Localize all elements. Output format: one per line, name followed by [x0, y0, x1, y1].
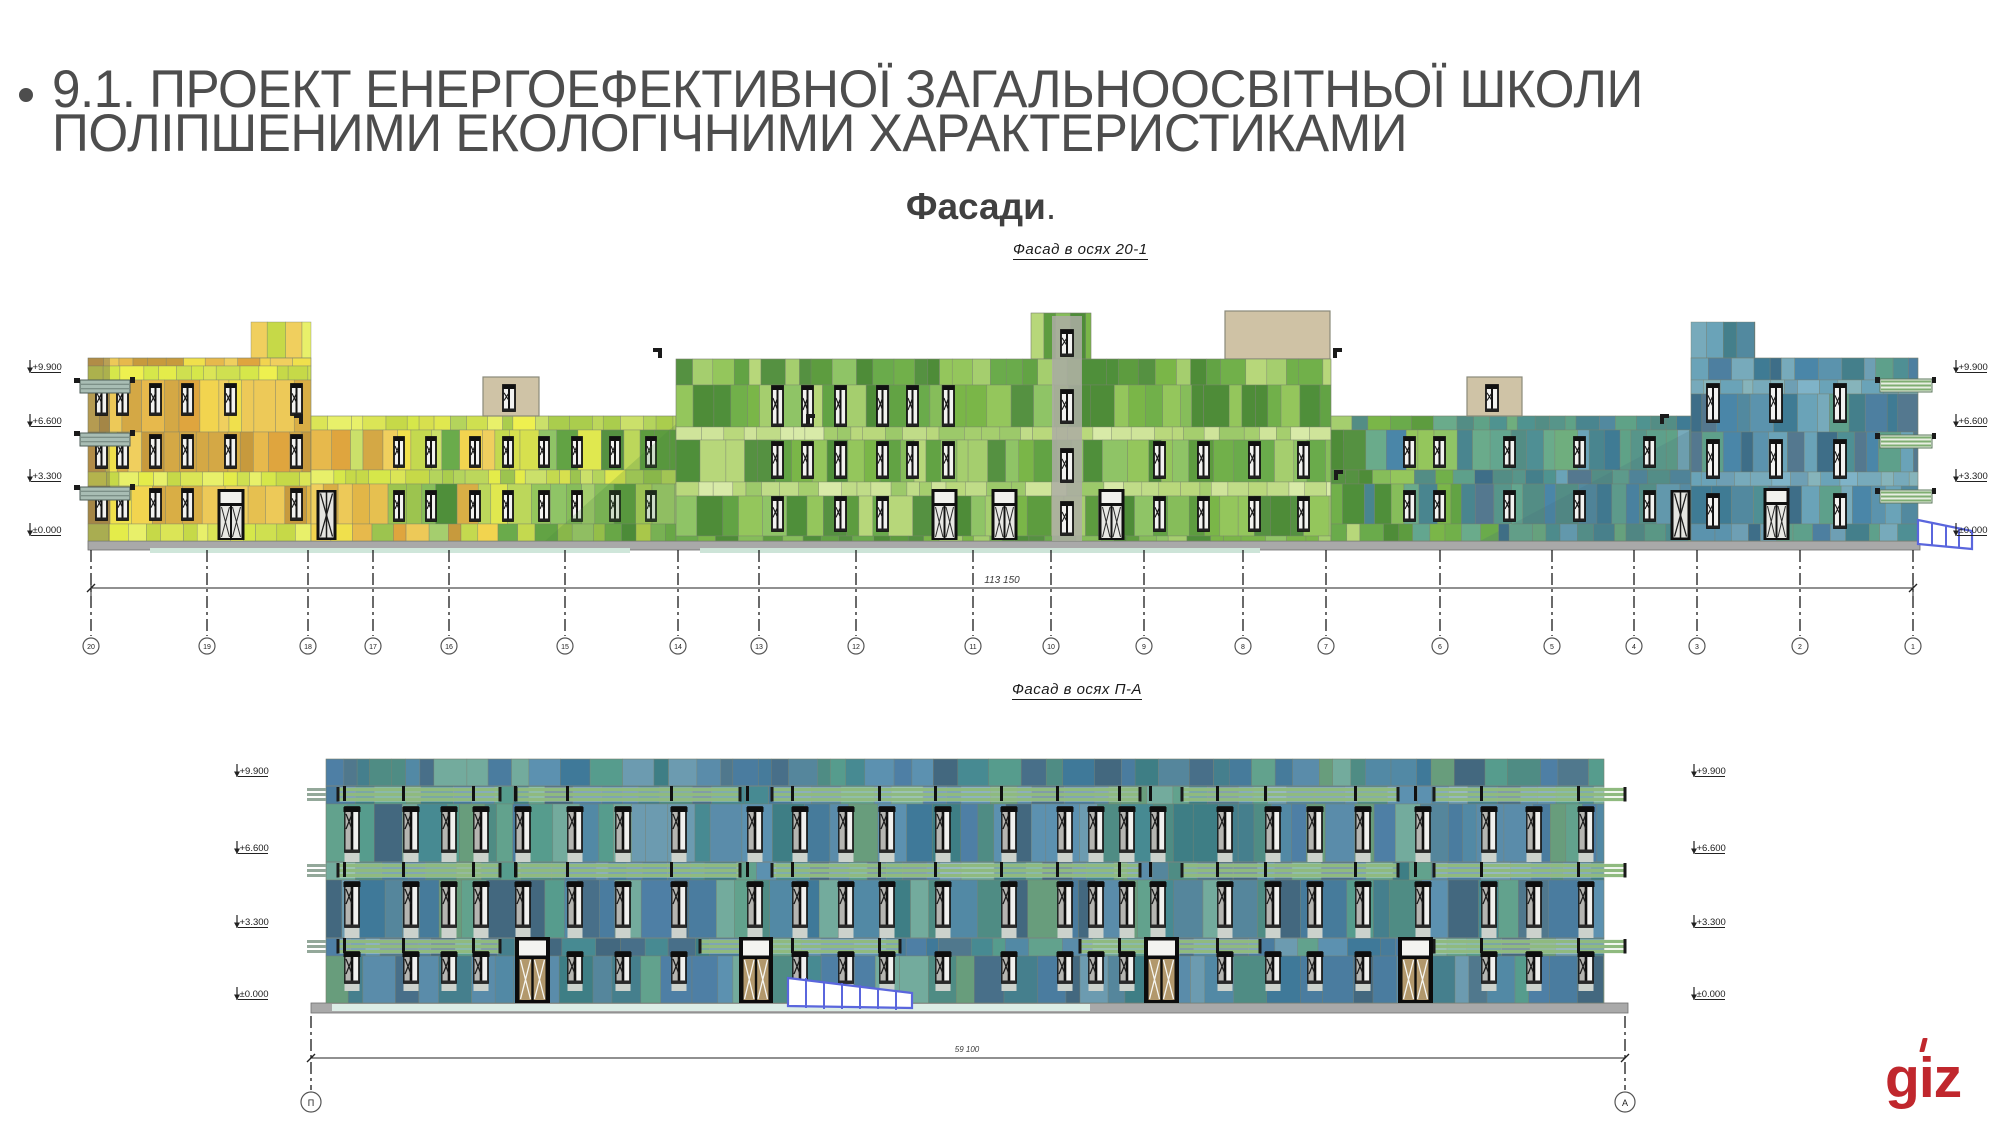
- svg-text:19: 19: [203, 644, 211, 651]
- svg-text:+3.300: +3.300: [1959, 471, 1988, 482]
- svg-text:13: 13: [755, 644, 763, 651]
- svg-text:3: 3: [1695, 644, 1699, 651]
- svg-text:А: А: [1622, 1098, 1628, 1108]
- svg-text:±0.000: ±0.000: [33, 525, 62, 536]
- svg-text:+6.600: +6.600: [33, 416, 62, 427]
- svg-text:П: П: [308, 1098, 314, 1108]
- svg-text:8: 8: [1241, 644, 1245, 651]
- svg-text:+9.900: +9.900: [1959, 362, 1988, 373]
- svg-text:59 100: 59 100: [955, 1045, 980, 1054]
- svg-text:7: 7: [1324, 644, 1328, 651]
- svg-text:113 150: 113 150: [984, 575, 1020, 586]
- svg-text:9: 9: [1142, 644, 1146, 651]
- svg-text:+3.300: +3.300: [33, 471, 62, 482]
- svg-text:±0.000: ±0.000: [1959, 525, 1988, 536]
- svg-text:10: 10: [1047, 644, 1055, 651]
- svg-text:±0.000: ±0.000: [240, 989, 269, 1000]
- svg-text:+3.300: +3.300: [240, 917, 269, 928]
- svg-text:15: 15: [561, 644, 569, 651]
- svg-text:12: 12: [852, 644, 860, 651]
- svg-text:16: 16: [445, 644, 453, 651]
- svg-text:6: 6: [1438, 644, 1442, 651]
- svg-text:+6.600: +6.600: [1697, 843, 1726, 854]
- svg-text:2: 2: [1798, 644, 1802, 651]
- svg-text:+9.900: +9.900: [33, 362, 62, 373]
- svg-text:18: 18: [304, 644, 312, 651]
- svg-text:14: 14: [674, 644, 682, 651]
- svg-text:+6.600: +6.600: [240, 843, 269, 854]
- svg-text:17: 17: [369, 644, 377, 651]
- svg-text:11: 11: [969, 644, 976, 651]
- svg-text:+9.900: +9.900: [1697, 766, 1726, 777]
- svg-text:+3.300: +3.300: [1697, 917, 1726, 928]
- svg-text:20: 20: [87, 644, 95, 651]
- svg-text:1: 1: [1911, 644, 1915, 651]
- svg-text:5: 5: [1550, 644, 1554, 651]
- svg-text:±0.000: ±0.000: [1697, 989, 1726, 1000]
- svg-text:4: 4: [1632, 644, 1636, 651]
- svg-text:+6.600: +6.600: [1959, 416, 1988, 427]
- svg-text:+9.900: +9.900: [240, 766, 269, 777]
